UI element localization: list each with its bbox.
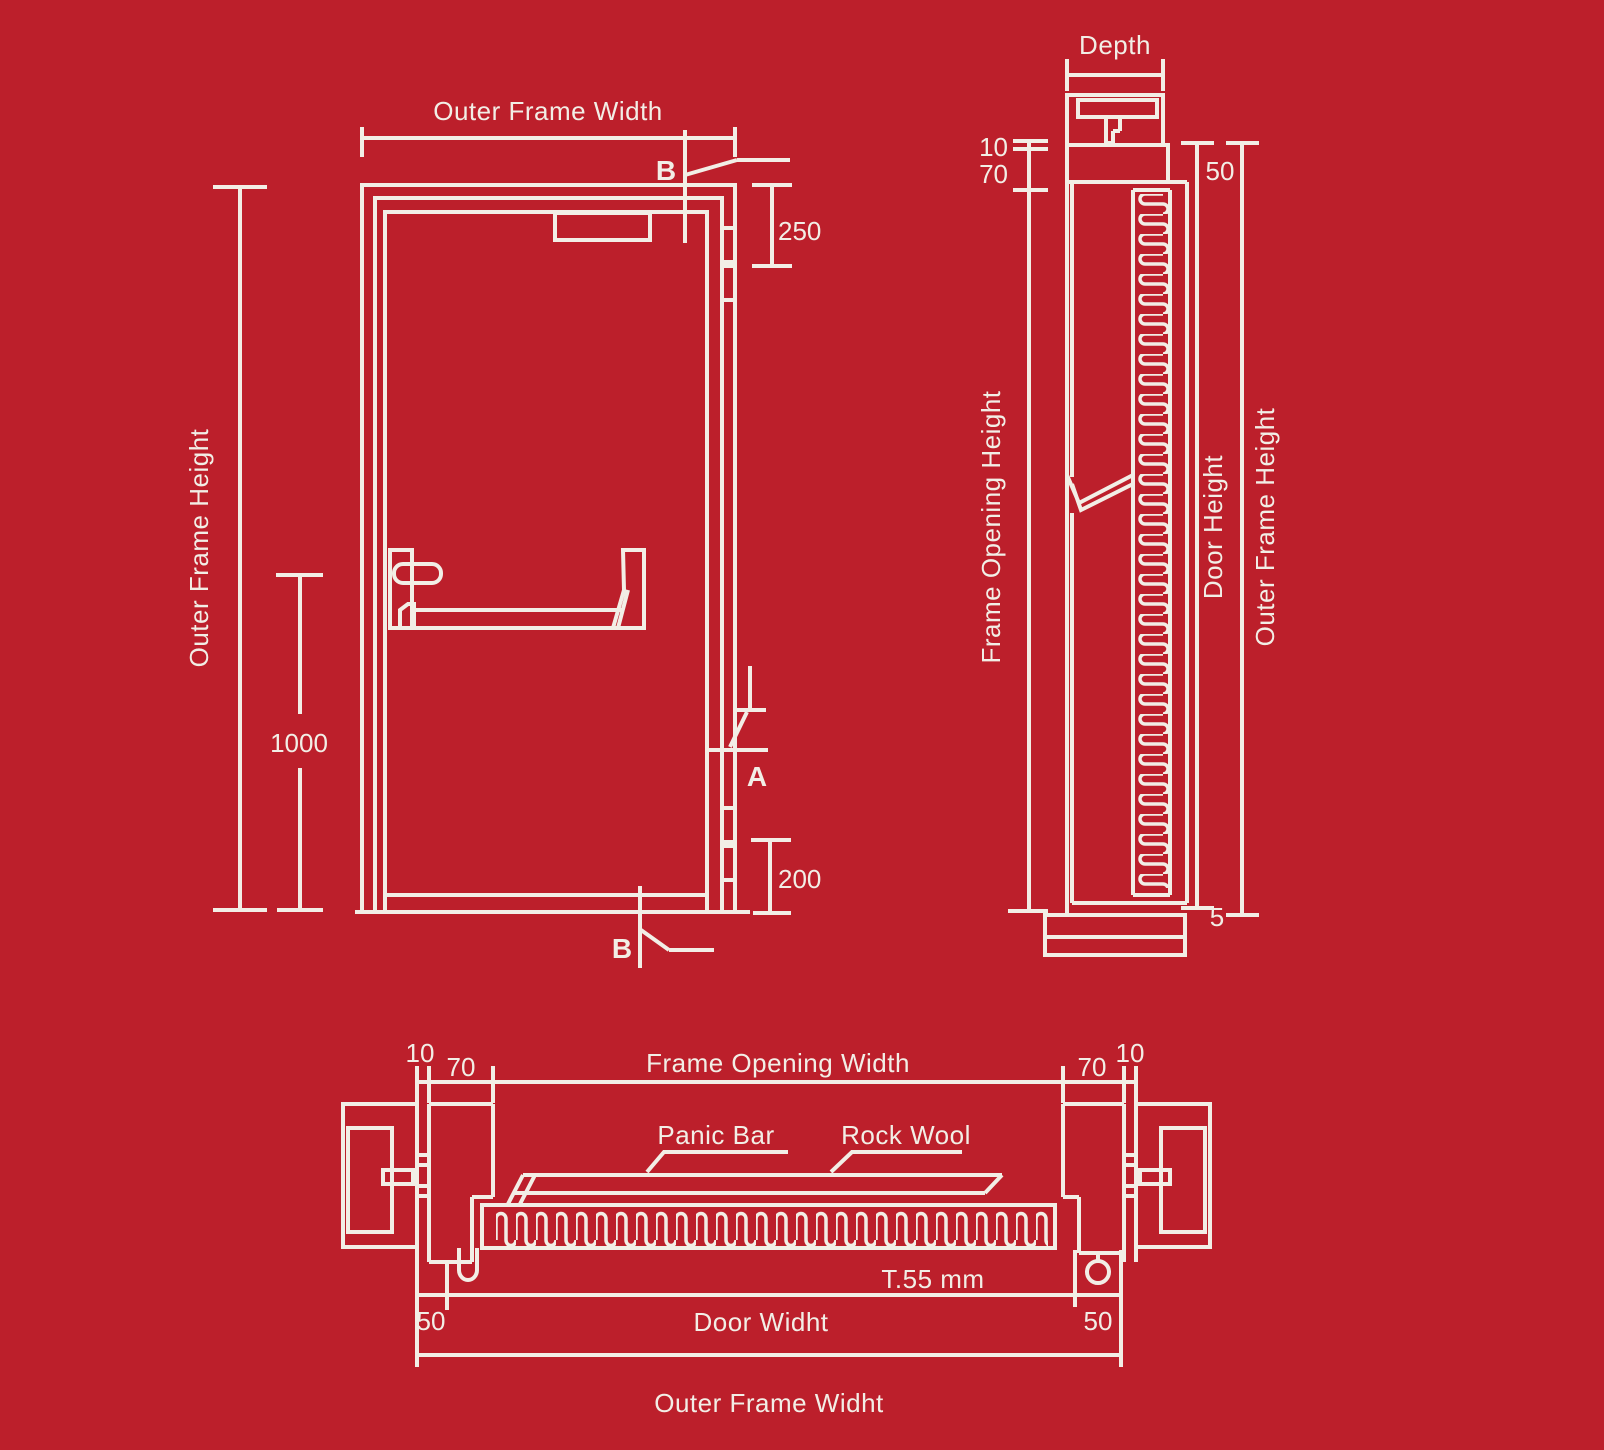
section-b-bottom-label: B: [612, 933, 632, 964]
frame-head-lintel: [1067, 145, 1168, 182]
right-jamb-profile: [1063, 1104, 1210, 1283]
panic-bar-assembly: [390, 550, 644, 628]
rock-wool-callout: Rock Wool: [831, 1120, 971, 1172]
fire-door-technical-drawing: Outer Frame Width Outer Frame Height 100…: [0, 0, 1604, 1450]
dim-5-bottom: 5: [1210, 902, 1224, 932]
outer-frame-width-dimension: Outer Frame Width: [362, 96, 735, 157]
top-hinge-upper: [722, 228, 735, 262]
inner-frame-outline: [375, 198, 722, 912]
panic-bar-height-dimension: 1000: [270, 575, 328, 910]
outer-frame-outline: [362, 185, 735, 912]
bottom-hinge-lower: [722, 846, 735, 880]
panic-bar-callout-label: Panic Bar: [657, 1120, 774, 1150]
dim-10-left: 10: [406, 1038, 435, 1068]
blueprint-canvas: Outer Frame Width Outer Frame Height 100…: [0, 0, 1604, 1450]
depth-dimension: Depth: [1067, 30, 1163, 91]
dim-70-right: 70: [1078, 1052, 1107, 1082]
door-height-label: Door Height: [1198, 455, 1228, 600]
depth-label: Depth: [1079, 30, 1151, 60]
section-mark-b-bottom: B: [612, 886, 714, 968]
door-leaf-outline: [385, 212, 707, 912]
section-a-label: A: [747, 761, 767, 792]
dim-10-top: 10: [979, 132, 1008, 162]
dim-70-left: 70: [447, 1052, 476, 1082]
door-closer-plate: [555, 213, 650, 240]
section-b-top-label: B: [656, 155, 676, 186]
dim-50-left: 50: [417, 1306, 446, 1336]
bottom-hinge-dimension: 200: [751, 840, 821, 913]
floor-sill: [1045, 915, 1185, 955]
outer-frame-width-label: Outer Frame Width: [433, 96, 663, 126]
panic-bar-lever: [394, 564, 441, 583]
vertical-section-view: Depth 10 70 Frame Openi: [976, 30, 1280, 955]
outer-frame-width-plan-label: Outer Frame Widht: [654, 1388, 884, 1418]
frame-head-profile: [1067, 95, 1168, 182]
horizontal-section-view: 10 70 Frame Opening Width 70 10: [343, 1038, 1210, 1418]
break-chevron: [1067, 475, 1133, 510]
dim-50-top: 50: [1206, 156, 1235, 186]
dim-1000-value: 1000: [270, 728, 328, 758]
outer-frame-height-dimension: Outer Frame Height: [184, 187, 267, 910]
rock-wool-serpentine-vertical: [1135, 194, 1168, 888]
frame-opening-width-label: Frame Opening Width: [646, 1048, 910, 1078]
frame-opening-width-dimension: 10 70 Frame Opening Width 70 10: [406, 1038, 1145, 1103]
rock-wool-callout-label: Rock Wool: [841, 1120, 971, 1150]
outer-frame-height-side-label: Outer Frame Height: [1250, 407, 1280, 646]
dim-200-value: 200: [778, 864, 821, 894]
dim-10-right: 10: [1116, 1038, 1145, 1068]
front-elevation-view: Outer Frame Width Outer Frame Height 100…: [184, 96, 821, 968]
top-hinge-dimension: 250: [752, 185, 821, 266]
dim-50-right: 50: [1084, 1306, 1113, 1336]
top-hinge-lower: [722, 266, 735, 300]
rock-wool-strip: [1133, 190, 1170, 895]
dim-70-top: 70: [979, 159, 1008, 189]
outer-frame-height-label: Outer Frame Height: [184, 428, 214, 667]
lock-cylinder: [1087, 1261, 1109, 1283]
dim-250-value: 250: [778, 216, 821, 246]
door-width-dimension: 50 Door Widht 50 Outer Frame Widht: [417, 1250, 1121, 1418]
frame-opening-height-label: Frame Opening Height: [976, 390, 1006, 663]
left-jamb-profile: [343, 1104, 493, 1262]
panic-bar-rail: [414, 610, 622, 628]
panic-bar-section: [508, 1175, 1002, 1204]
panic-bar-callout: Panic Bar: [647, 1120, 788, 1172]
door-thickness-label: T.55 mm: [881, 1264, 984, 1294]
bottom-hinge-upper: [722, 808, 735, 842]
panic-bar-end-bracket: [613, 550, 644, 628]
rock-wool-serpentine-horizontal: [496, 1209, 1048, 1246]
door-width-label: Door Widht: [693, 1307, 828, 1337]
frame-opening-height-dimension: 10 70 Frame Opening Height: [976, 132, 1048, 911]
